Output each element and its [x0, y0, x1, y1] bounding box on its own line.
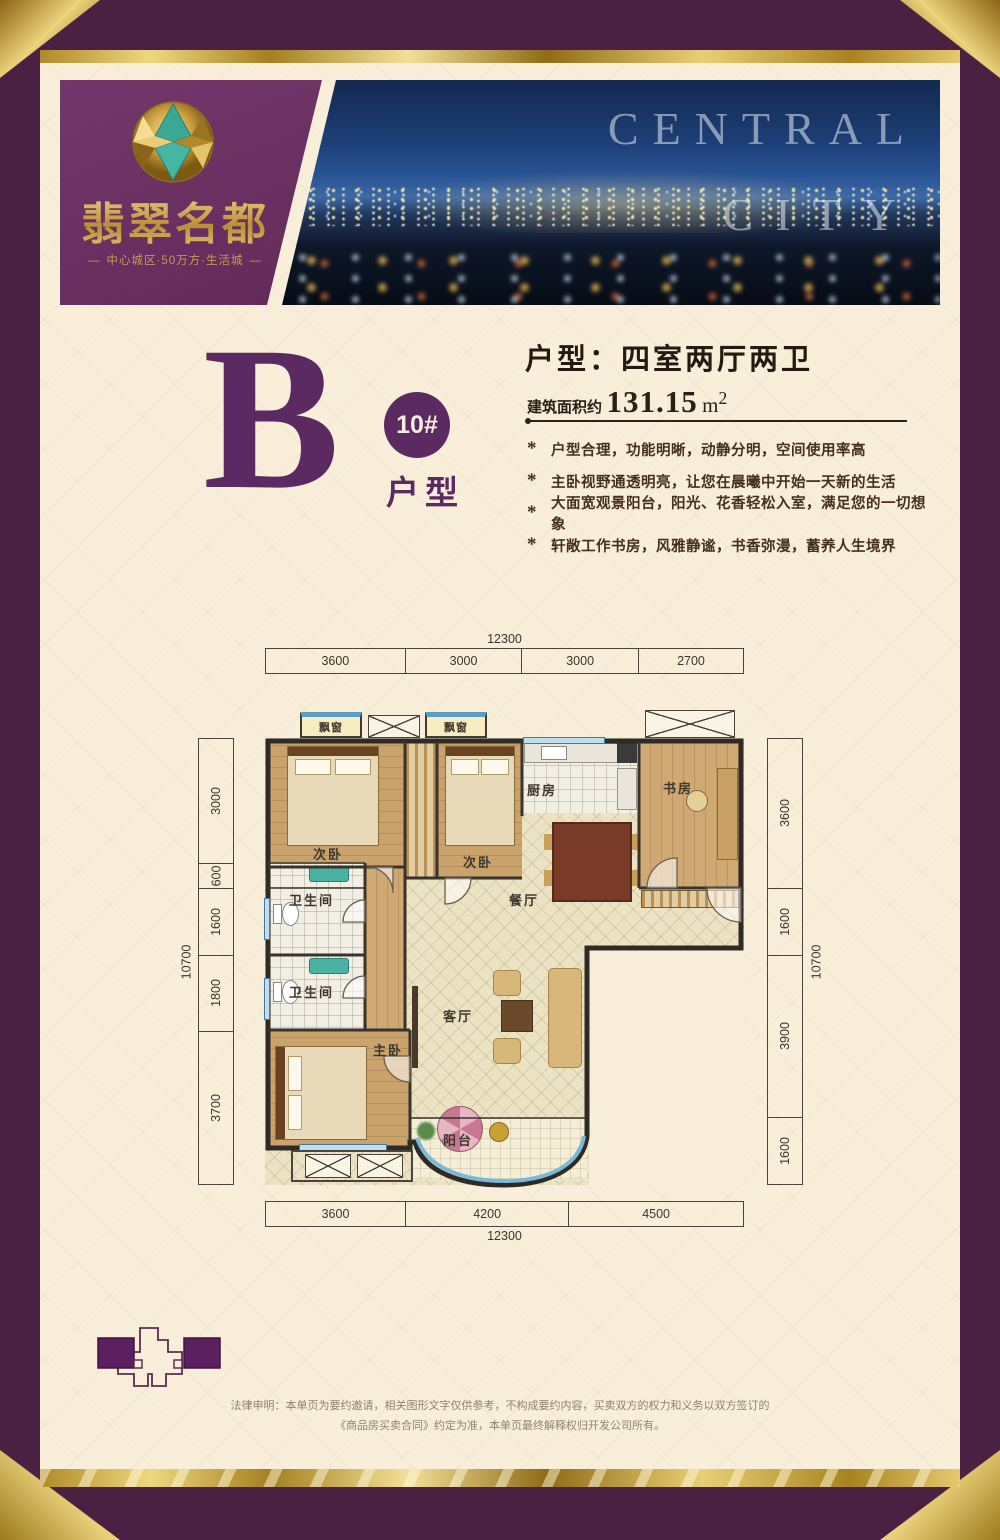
asterisk-bullet-icon: *	[527, 534, 537, 556]
legal-line-1: 法律申明：本单页为要约邀请，相关图形文字仅供参考，不构成要约内容，买卖双方的权力…	[200, 1396, 800, 1416]
area-value: 131.15	[606, 384, 697, 419]
ac-platform	[305, 1154, 351, 1178]
dim-segment: 3000	[199, 738, 233, 863]
kitchen-window	[523, 737, 605, 744]
bath-window	[264, 978, 270, 1020]
room-label-study: 书房	[663, 778, 693, 797]
room-label-dining: 餐厅	[509, 890, 539, 909]
ac-platform	[645, 710, 735, 738]
asterisk-bullet-icon: *	[527, 470, 537, 492]
feature-list: *户型合理，功能明晰，动静分明，空间使用率高 *主卧视野通透明亮，让您在晨曦中开…	[527, 433, 927, 561]
building-footprint-icon	[90, 1322, 225, 1402]
dim-segment: 3600	[768, 738, 802, 888]
building-number-badge: 10#	[384, 392, 450, 458]
legal-line-2: 《商品房买卖合同》约定为准，本单页最终解释权归开发公司所有。	[200, 1416, 800, 1436]
bath-window	[264, 898, 270, 940]
dim-segment: 3000	[406, 649, 523, 673]
dim-segment: 2700	[639, 649, 744, 673]
asterisk-bullet-icon: *	[527, 438, 537, 460]
dim-segment: 3600	[265, 1202, 406, 1226]
dim-segment: 3900	[768, 955, 802, 1117]
dim-segment: 3000	[522, 649, 639, 673]
room-label-balcony: 阳台	[443, 1130, 473, 1149]
legal-disclaimer: 法律申明：本单页为要约邀请，相关图形文字仅供参考，不构成要约内容，买卖双方的权力…	[200, 1396, 800, 1436]
area-row: 建筑面积约 131.15 m2	[527, 384, 727, 420]
room-label-bedroom-b: 次卧	[463, 852, 493, 871]
dim-top-total: 12300	[265, 630, 744, 648]
room-label-kitchen: 厨房	[527, 780, 557, 799]
feature-item: *户型合理，功能明晰，动静分明，空间使用率高	[527, 433, 927, 465]
asterisk-bullet-icon: *	[527, 502, 537, 524]
dim-segment: 1600	[768, 1117, 802, 1185]
dimension-chain-left: 3000 600 1600 1800 3700	[198, 738, 234, 1185]
dimension-chain-top: 12300 3600 3000 3000 2700	[265, 630, 744, 674]
room-label-bath-1: 卫生间	[289, 890, 334, 909]
dim-segment: 4500	[569, 1202, 744, 1226]
unit-title: 户型：四室两厅两卫	[525, 336, 813, 378]
dim-segment: 1600	[768, 888, 802, 955]
unit-type-label: 户型	[386, 466, 464, 514]
dim-segment: 600	[199, 863, 233, 889]
dim-segment: 1600	[199, 888, 233, 955]
brand-name: 翡翠名都	[60, 188, 290, 252]
ac-platform	[368, 715, 420, 738]
dim-left-total: 10700	[176, 738, 196, 1185]
photo-caption-central: CENTRAL	[608, 102, 918, 155]
gold-trim-top	[40, 50, 960, 63]
room-label-bedroom-a: 次卧	[313, 844, 343, 863]
gold-trim-bottom	[40, 1469, 960, 1487]
feature-item: *轩敞工作书房，风雅静谧，书香弥漫，蓄养人生境界	[527, 529, 927, 561]
feature-item: *大面宽观景阳台，阳光、花香轻松入室，满足您的一切想象	[527, 497, 927, 529]
poster-body: CENTRAL CITY 翡翠名都 中心城区·5	[40, 50, 960, 1487]
unit-letter: B	[203, 340, 353, 500]
hero-header: CENTRAL CITY 翡翠名都 中心城区·5	[60, 80, 940, 305]
photo-caption-city: CITY	[723, 188, 918, 241]
plan-walls	[265, 738, 744, 1185]
dim-segment: 3600	[265, 649, 406, 673]
room-label-master: 主卧	[373, 1040, 403, 1059]
ac-platform	[357, 1154, 403, 1178]
flyer-page: { "brand": { "name": "翡翠名都", "tagline": …	[0, 0, 1000, 1540]
room-label-living: 客厅	[443, 1006, 473, 1025]
city-night-photo: CENTRAL CITY	[276, 80, 940, 305]
dim-bottom-total: 12300	[265, 1227, 744, 1245]
floor-plan: 飘窗 飘窗 次卧 次卧 厨房 书房 卫生间 卫生间 餐厅 客厅 主卧 阳台	[265, 738, 744, 1185]
area-unit: m2	[702, 393, 727, 417]
bay-window-2: 飘窗	[425, 712, 487, 738]
room-label-bath-2: 卫生间	[289, 982, 334, 1001]
brand-tagline: 中心城区·50万方·生活城	[60, 252, 290, 268]
divider-rule	[527, 420, 907, 422]
gem-logo-icon	[60, 80, 290, 190]
brand-panel: 翡翠名都 中心城区·50万方·生活城	[60, 80, 322, 305]
foreground-bokeh	[276, 247, 940, 306]
dimension-chain-bottom: 3600 4200 4500 12300	[265, 1201, 744, 1245]
dim-segment: 4200	[406, 1202, 569, 1226]
dim-segment: 1800	[199, 955, 233, 1030]
dim-segment: 3700	[199, 1031, 233, 1186]
bay-window-1: 飘窗	[300, 712, 362, 738]
dim-right-total: 10700	[806, 738, 826, 1185]
area-label: 建筑面积约	[527, 399, 602, 416]
dimension-chain-right: 3600 1600 3900 1600	[767, 738, 803, 1185]
